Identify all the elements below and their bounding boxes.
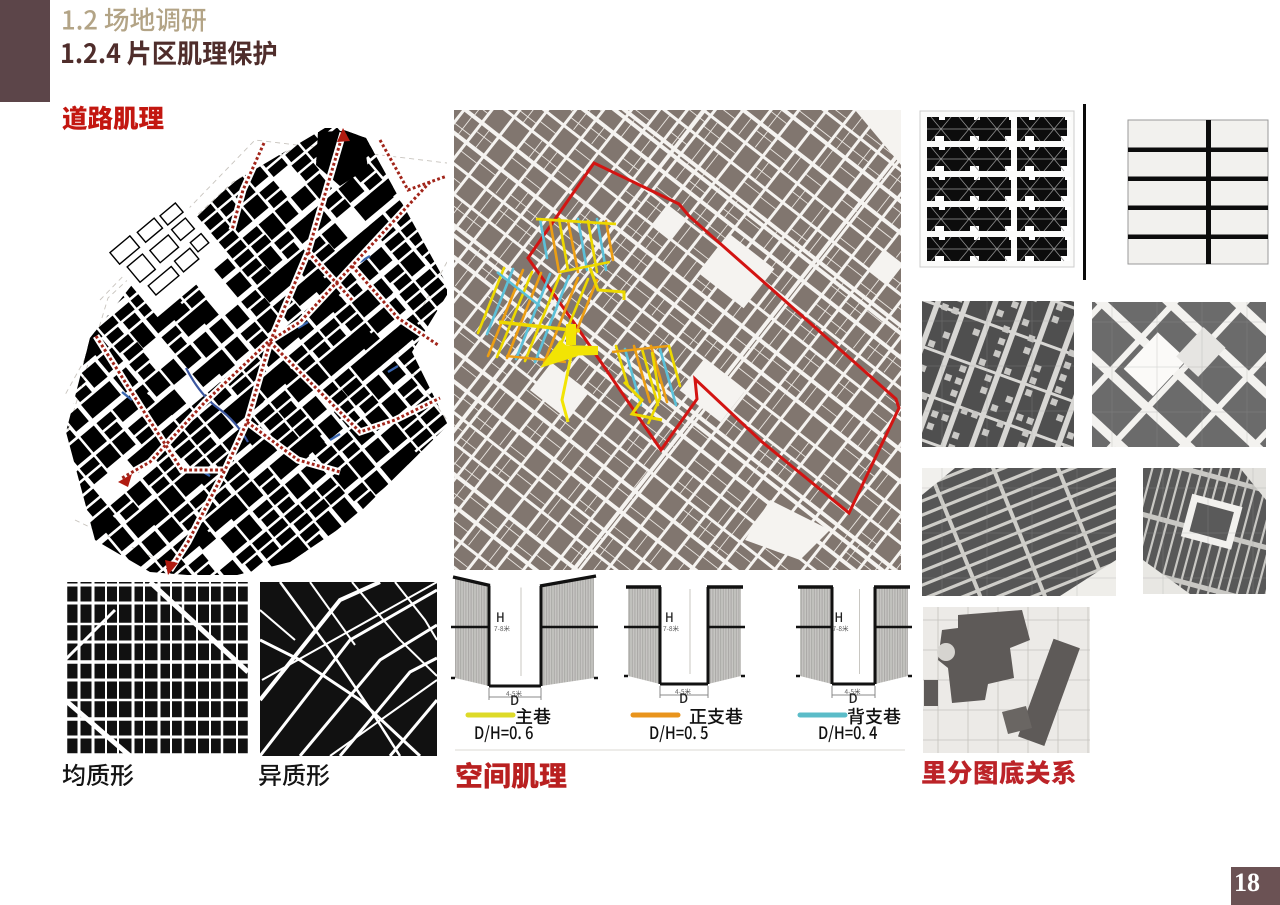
svg-text:18: 18: [1234, 868, 1260, 897]
